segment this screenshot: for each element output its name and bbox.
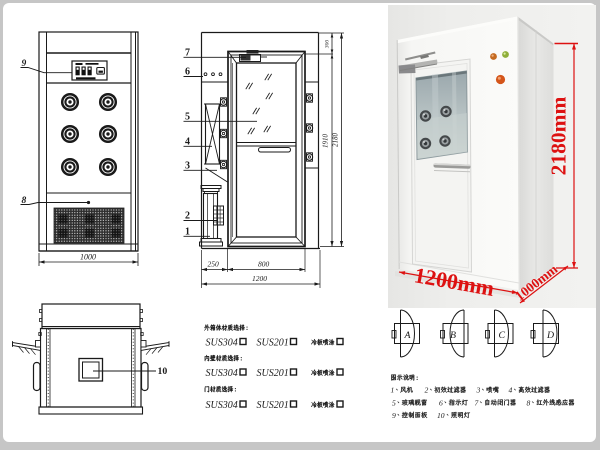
svg-text:250: 250 [208,260,220,269]
svg-text:5: 5 [185,112,190,123]
svg-text::: : [246,324,248,332]
svg-text:SUS304: SUS304 [206,400,238,411]
svg-text:6: 6 [439,398,443,407]
svg-text:3: 3 [476,386,481,395]
svg-text:SUS201: SUS201 [257,338,289,349]
svg-text::: : [234,386,236,394]
svg-text:1: 1 [391,386,395,395]
svg-text:1000: 1000 [80,253,96,262]
svg-text::: : [416,374,418,382]
svg-text:2180mm: 2180mm [547,97,571,176]
svg-text:800: 800 [258,260,270,269]
svg-text:10: 10 [437,411,445,420]
svg-text:10: 10 [158,366,168,377]
svg-text:SUS201: SUS201 [257,400,289,411]
svg-text:4: 4 [509,386,513,395]
svg-text:SUS304: SUS304 [206,368,238,379]
svg-text:9: 9 [392,411,396,420]
svg-text:B: B [450,330,456,341]
svg-text:A: A [404,330,412,341]
svg-text:6: 6 [185,67,190,78]
svg-text:D: D [546,330,554,341]
svg-text:SUS304: SUS304 [206,338,238,349]
svg-text:2: 2 [425,386,429,395]
svg-text:300: 300 [325,40,331,50]
svg-text:8: 8 [527,398,531,407]
svg-text:2: 2 [185,211,190,222]
svg-text::: : [240,355,242,363]
svg-text:5: 5 [392,398,396,407]
svg-text:C: C [499,330,506,341]
svg-text:2180: 2180 [332,133,340,148]
svg-text:SUS201: SUS201 [257,368,289,379]
svg-text:1200: 1200 [252,274,267,283]
svg-text:1910: 1910 [322,134,330,149]
